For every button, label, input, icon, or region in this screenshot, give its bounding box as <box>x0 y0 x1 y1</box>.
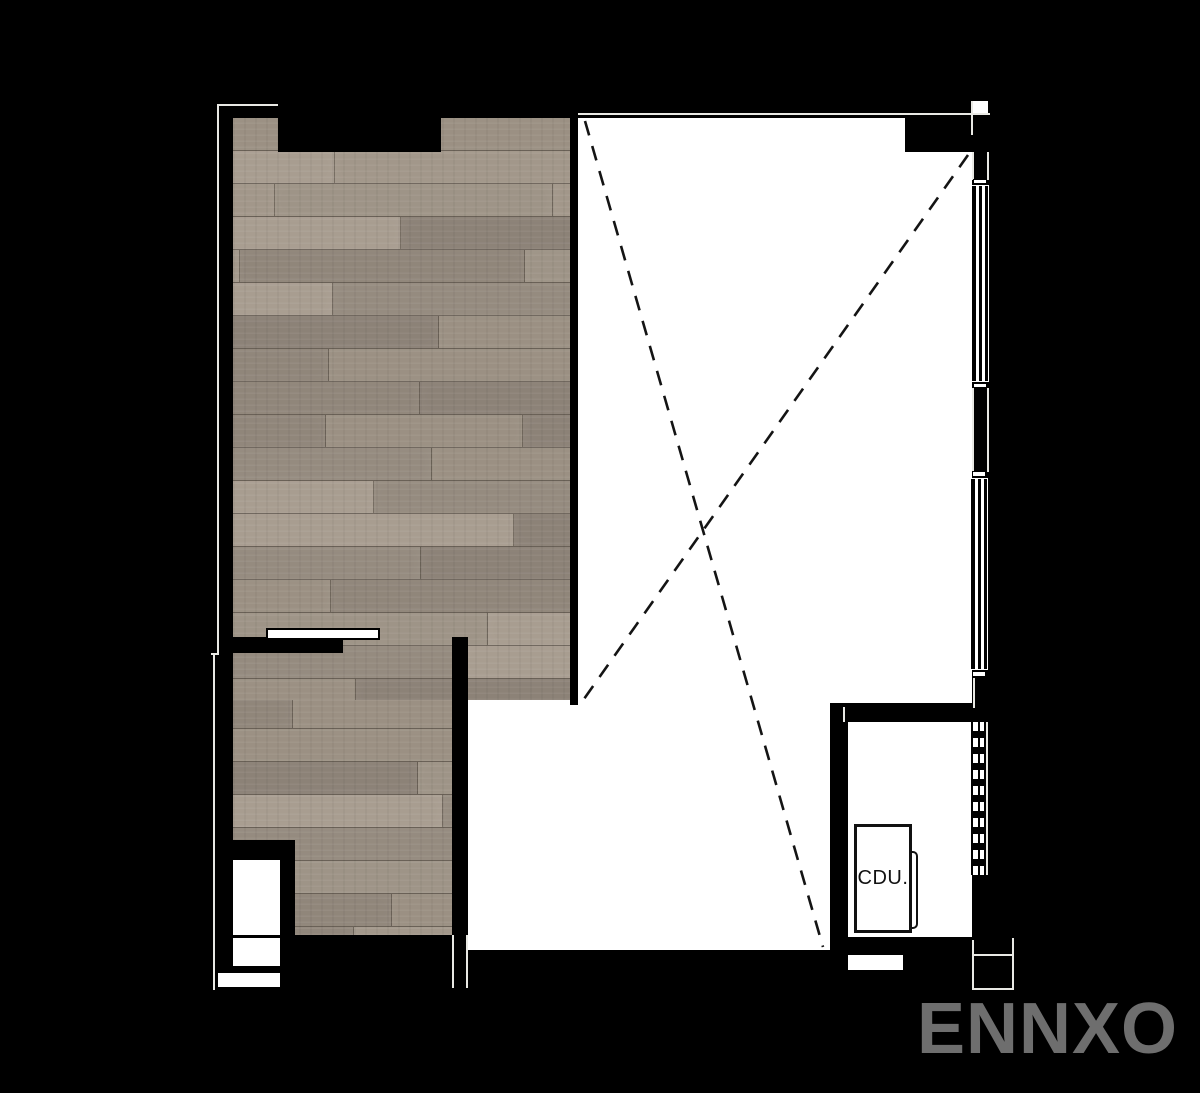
wall-interior-vertical <box>452 637 468 950</box>
outline-br-horizontal <box>972 954 1014 956</box>
outline-jamb-a1 <box>972 152 974 180</box>
outline-top-main <box>578 113 990 115</box>
outline-br-vertical-1 <box>972 940 974 990</box>
floor-plan: CDU. ENNXO <box>0 0 1200 1093</box>
living-room-floor-lower <box>468 700 830 950</box>
shaft-opening-lower <box>233 938 280 966</box>
wall-room-divider <box>570 118 578 705</box>
entry-recess-strip <box>218 973 280 987</box>
wall-pier-top-right <box>905 118 972 152</box>
louver-grille <box>971 722 984 875</box>
window-lower-glass <box>970 478 988 670</box>
wall-ledge-left <box>830 722 848 955</box>
window-lower <box>970 471 988 677</box>
outline-left-upper <box>217 104 219 654</box>
outline-left-lower <box>213 655 215 990</box>
window-pane <box>981 479 984 669</box>
outline-top-left <box>218 104 278 106</box>
outline-entry-v1 <box>452 935 454 988</box>
wall-bottom-under-corridor <box>295 935 468 993</box>
wall-ledge-top <box>830 703 990 722</box>
outline-right-lower <box>973 678 975 708</box>
sliding-door <box>266 628 380 640</box>
outline-top-right-vertical <box>971 101 973 135</box>
watermark: ENNXO <box>917 988 1178 1070</box>
bedroom-floor <box>233 118 570 700</box>
cdu-unit: CDU. <box>854 824 912 933</box>
window-upper <box>971 179 989 388</box>
wall-notch-top <box>278 118 441 152</box>
living-room-floor-upper <box>578 118 972 712</box>
outline-jamb-b1 <box>972 388 974 472</box>
ledge-door-opening <box>848 955 903 970</box>
window-pane <box>982 186 985 381</box>
outline-louver-right <box>986 722 988 875</box>
window-upper-sill-top <box>973 179 987 184</box>
window-lower-sill-top <box>972 471 986 477</box>
outline-br-vertical-2 <box>1012 938 1014 988</box>
window-pane <box>976 186 979 381</box>
wall-bottom-under-living <box>468 950 830 993</box>
window-lower-sill-bottom <box>972 671 986 677</box>
window-upper-sill-bottom <box>973 383 987 388</box>
cdu-label: CDU. <box>858 867 909 890</box>
outline-ledge-corner-tick <box>843 707 845 722</box>
outline-jamb-a2 <box>987 152 989 180</box>
outline-jamb-b2 <box>987 388 989 472</box>
window-upper-glass <box>971 185 989 382</box>
window-pane <box>975 479 978 669</box>
outline-entry-v2 <box>466 935 468 988</box>
shaft-opening-upper <box>233 860 280 935</box>
